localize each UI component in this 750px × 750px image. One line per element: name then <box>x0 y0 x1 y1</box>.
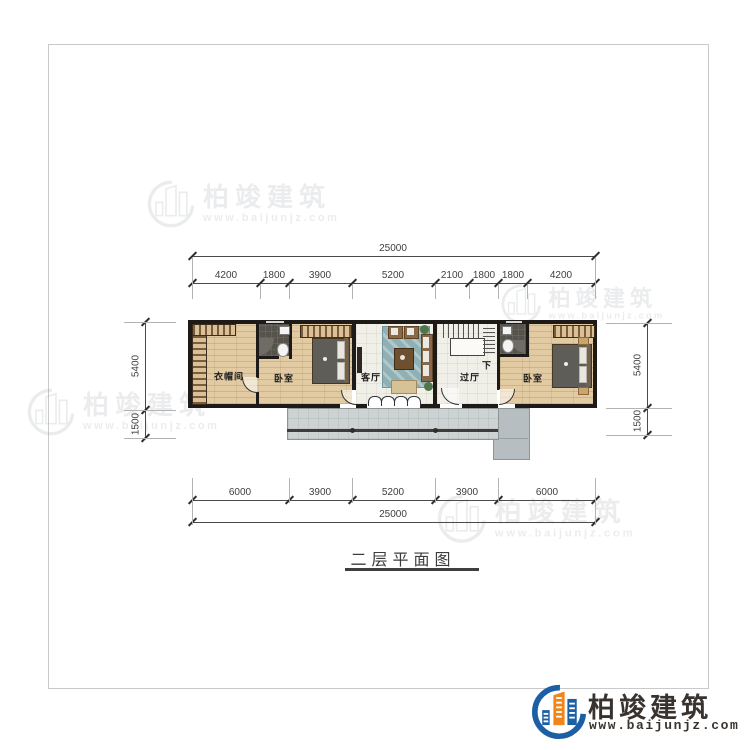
dim-label: 25000 <box>379 243 407 254</box>
dim-label: 1800 <box>502 270 524 281</box>
room-label-bedroom-right: 卧室 <box>523 372 543 385</box>
window-marker <box>266 321 284 323</box>
folding-door-leaf <box>394 396 408 406</box>
room-label-bedroom-left: 卧室 <box>274 372 294 385</box>
dim-line-top-segments <box>192 283 595 284</box>
dim-label: 5200 <box>382 487 404 498</box>
dim-label: 5200 <box>382 270 404 281</box>
floor-plan-page: 柏竣建筑 www.baijunjz.com 柏竣建筑 www.baijunjz.… <box>0 0 750 750</box>
wall-segment <box>188 404 340 408</box>
pillow <box>337 362 345 380</box>
wall-segment <box>356 404 367 408</box>
dim-label: 1800 <box>263 270 285 281</box>
wall-segment <box>526 324 529 357</box>
sofa-cushion <box>423 351 429 362</box>
plant <box>420 325 429 334</box>
wardrobe <box>192 332 207 405</box>
dim-label: 25000 <box>379 509 407 520</box>
bed-decor <box>564 362 568 366</box>
dim-label: 6000 <box>229 487 251 498</box>
dim-label: 3900 <box>456 487 478 498</box>
watermark-text: 柏竣建筑 www.baijunjz.com <box>548 287 664 321</box>
balcony-railing <box>287 429 498 432</box>
wall-segment <box>497 354 529 357</box>
wall-segment <box>497 357 500 390</box>
dim-label: 2100 <box>441 270 463 281</box>
drawing-title: 二层平面图 <box>350 546 455 570</box>
brand-logo-icon <box>146 178 196 230</box>
folding-door-leaf <box>407 396 421 406</box>
bed-decor <box>323 357 327 361</box>
balcony <box>287 408 499 440</box>
brand-logo-icon <box>531 683 587 741</box>
railing-post <box>433 428 438 433</box>
watermark-brand-name: 柏竣建筑 <box>495 498 636 525</box>
dresser <box>300 325 352 338</box>
dim-label: 3900 <box>309 487 331 498</box>
folding-door-leaf <box>381 396 395 406</box>
dim-label: 4200 <box>550 270 572 281</box>
stairs-down-label: 下 <box>482 359 492 372</box>
railing-post <box>350 428 355 433</box>
watermark-text: 柏竣建筑 www.baijunjz.com <box>203 184 340 224</box>
dim-line-top-total <box>192 256 595 257</box>
watermark: 柏竣建筑 www.baijunjz.com <box>146 178 340 230</box>
pillow <box>337 341 345 359</box>
watermark-brand-url: www.baijunjz.com <box>495 527 636 539</box>
wall-segment <box>420 404 440 408</box>
dim-label: 6000 <box>536 487 558 498</box>
room-label-living: 客厅 <box>361 371 381 384</box>
armchair-cushion <box>391 328 398 335</box>
wall-segment <box>256 392 259 404</box>
window-marker <box>506 321 522 323</box>
brand-url: www.baijunjz.com <box>589 718 739 733</box>
room-label-cloakroom: 衣帽间 <box>214 370 244 383</box>
wall-segment <box>433 320 437 404</box>
dim-label: 1500 <box>131 413 142 435</box>
pillow <box>579 347 587 364</box>
wardrobe <box>192 324 236 336</box>
plant <box>424 382 433 391</box>
sink <box>279 326 290 335</box>
dim-line-right <box>647 323 648 435</box>
toilet <box>502 339 514 353</box>
title-underline <box>345 568 479 571</box>
wall-segment <box>352 320 356 390</box>
dim-label: 1800 <box>473 270 495 281</box>
nightstand <box>578 387 589 395</box>
dim-label: 1500 <box>633 410 644 432</box>
folding-door-leaf <box>368 396 382 406</box>
bench <box>391 380 417 394</box>
dim-line-bottom-total <box>192 522 595 523</box>
watermark-text: 柏竣建筑 www.baijunjz.com <box>495 498 636 539</box>
dim-label: 5400 <box>633 354 644 376</box>
wall-segment <box>256 356 279 359</box>
sink <box>502 326 512 335</box>
dim-line-left <box>145 322 146 438</box>
toilet <box>277 343 289 357</box>
watermark-brand-url: www.baijunjz.com <box>83 420 220 432</box>
wall-segment <box>462 404 498 408</box>
wall-segment <box>256 359 259 378</box>
wall-segment <box>515 404 597 408</box>
tv-cabinet <box>357 347 362 373</box>
wall-segment <box>188 320 597 324</box>
dim-label: 3900 <box>309 270 331 281</box>
watermark-brand-name: 柏竣建筑 <box>203 184 340 210</box>
watermark-brand-url: www.baijunjz.com <box>203 212 340 224</box>
dim-line-bottom-segments <box>192 500 595 501</box>
dim-label: 5400 <box>131 355 142 377</box>
wall-segment <box>497 324 500 357</box>
room-label-hall: 过厅 <box>460 371 480 384</box>
stair-landing <box>450 338 485 356</box>
watermark-brand-name: 柏竣建筑 <box>548 287 664 309</box>
sofa-cushion <box>423 365 429 376</box>
armchair-cushion <box>407 328 414 335</box>
pillow <box>579 366 587 383</box>
sofa-cushion <box>423 337 429 348</box>
table-decor <box>400 355 405 360</box>
brand-logo-icon <box>26 386 76 438</box>
nightstand <box>578 337 589 345</box>
dim-label: 4200 <box>215 270 237 281</box>
